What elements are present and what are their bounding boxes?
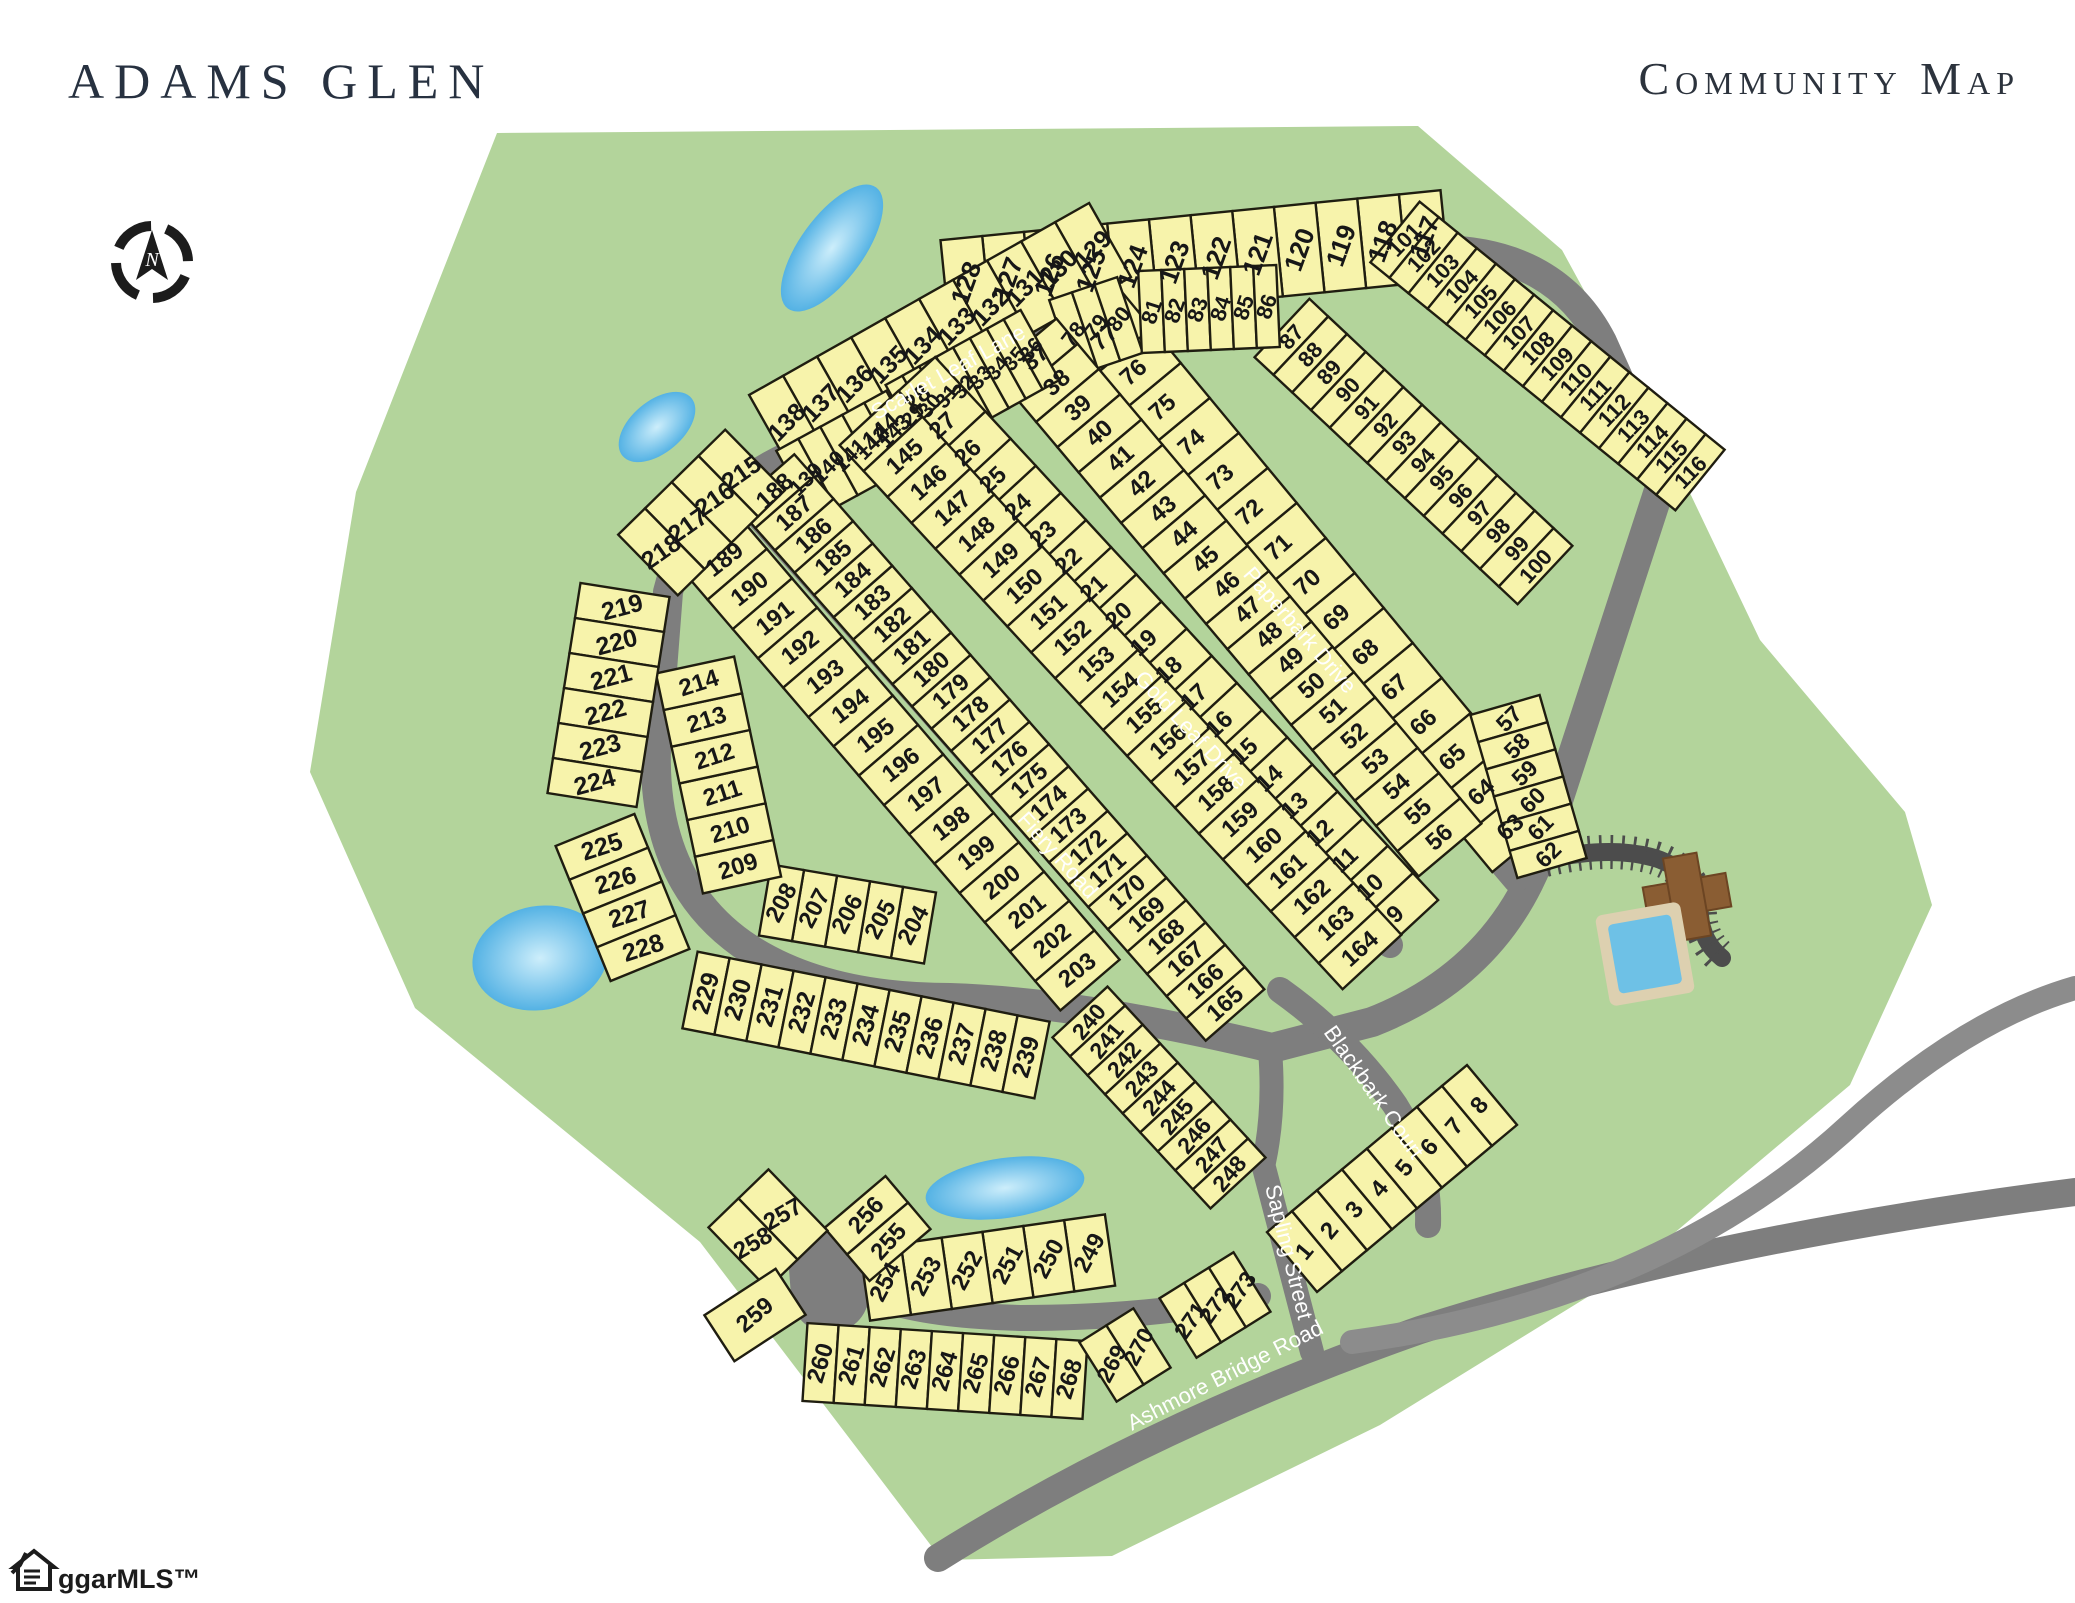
community-map-page: 1171181191201211221231241251261271281011…	[0, 0, 2075, 1603]
mls-logo-text: ggarMLS™	[58, 1564, 201, 1595]
north-arrow-icon: N	[104, 214, 200, 315]
community-map: 1171181191201211221231241251261271281011…	[0, 0, 2075, 1603]
swimming-pool	[1595, 901, 1696, 1007]
mls-logo: ggarMLS™	[6, 1543, 201, 1595]
svg-text:N: N	[144, 249, 160, 271]
map-type-label: Community Map	[1638, 52, 2020, 105]
house-icon	[6, 1543, 62, 1595]
loop-sapling-connector-road	[1264, 1050, 1272, 1162]
culdesac-bulb-road	[828, 1268, 830, 1294]
page-title: ADAMS GLEN	[68, 52, 494, 110]
